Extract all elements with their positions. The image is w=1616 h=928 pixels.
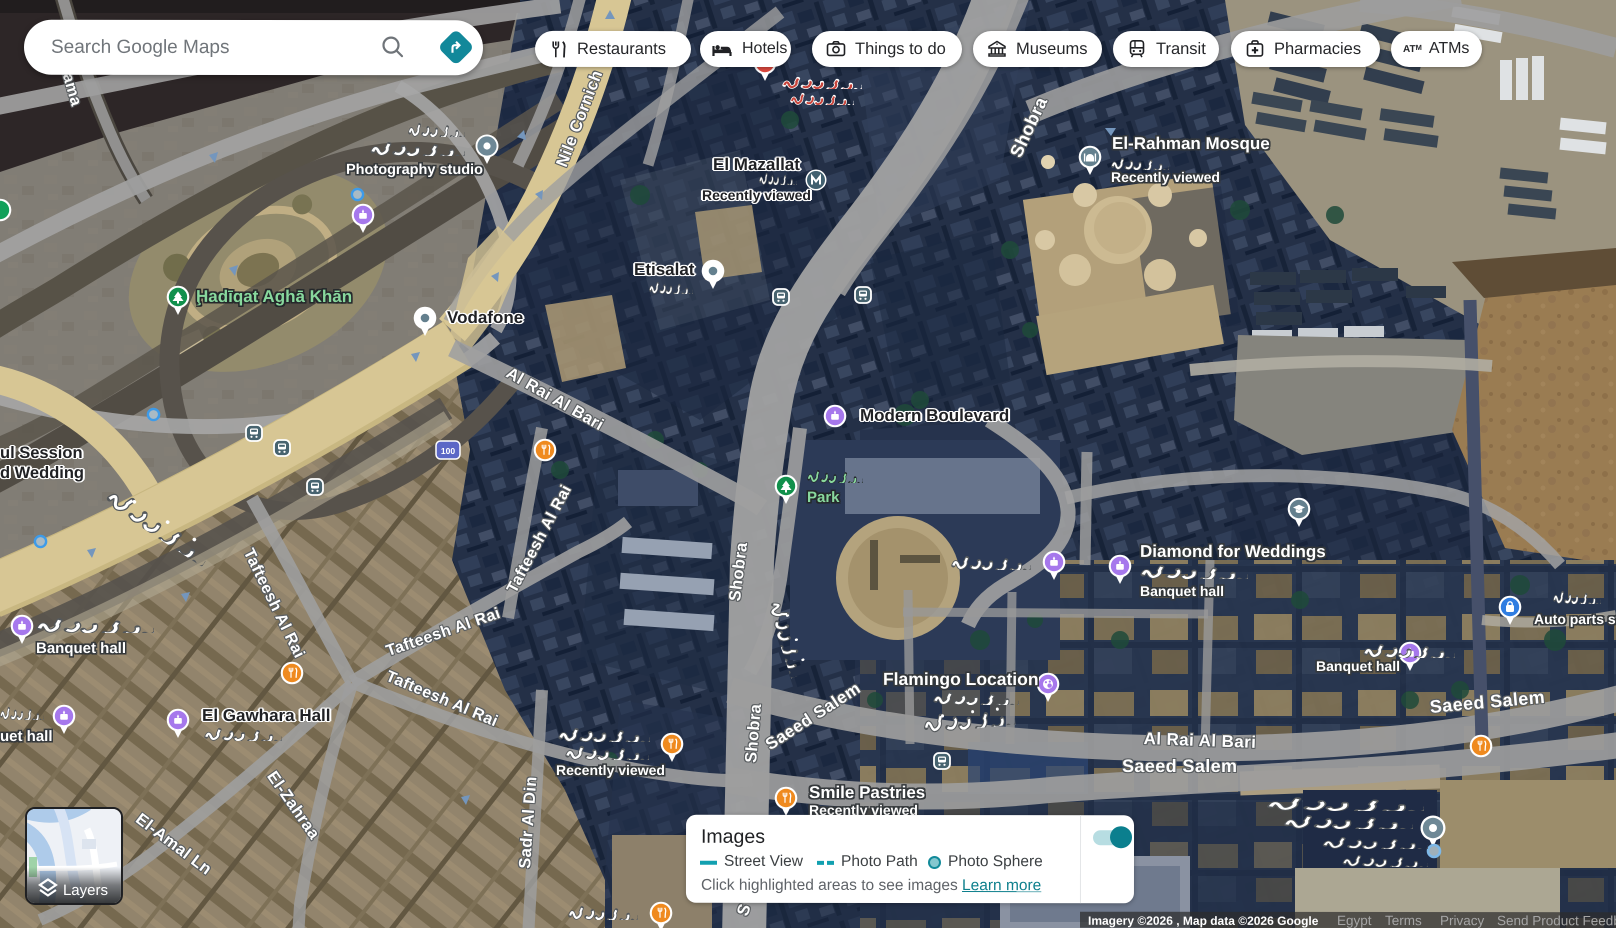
svg-text:100: 100 (441, 446, 455, 456)
svg-text:Layers: Layers (63, 882, 108, 899)
